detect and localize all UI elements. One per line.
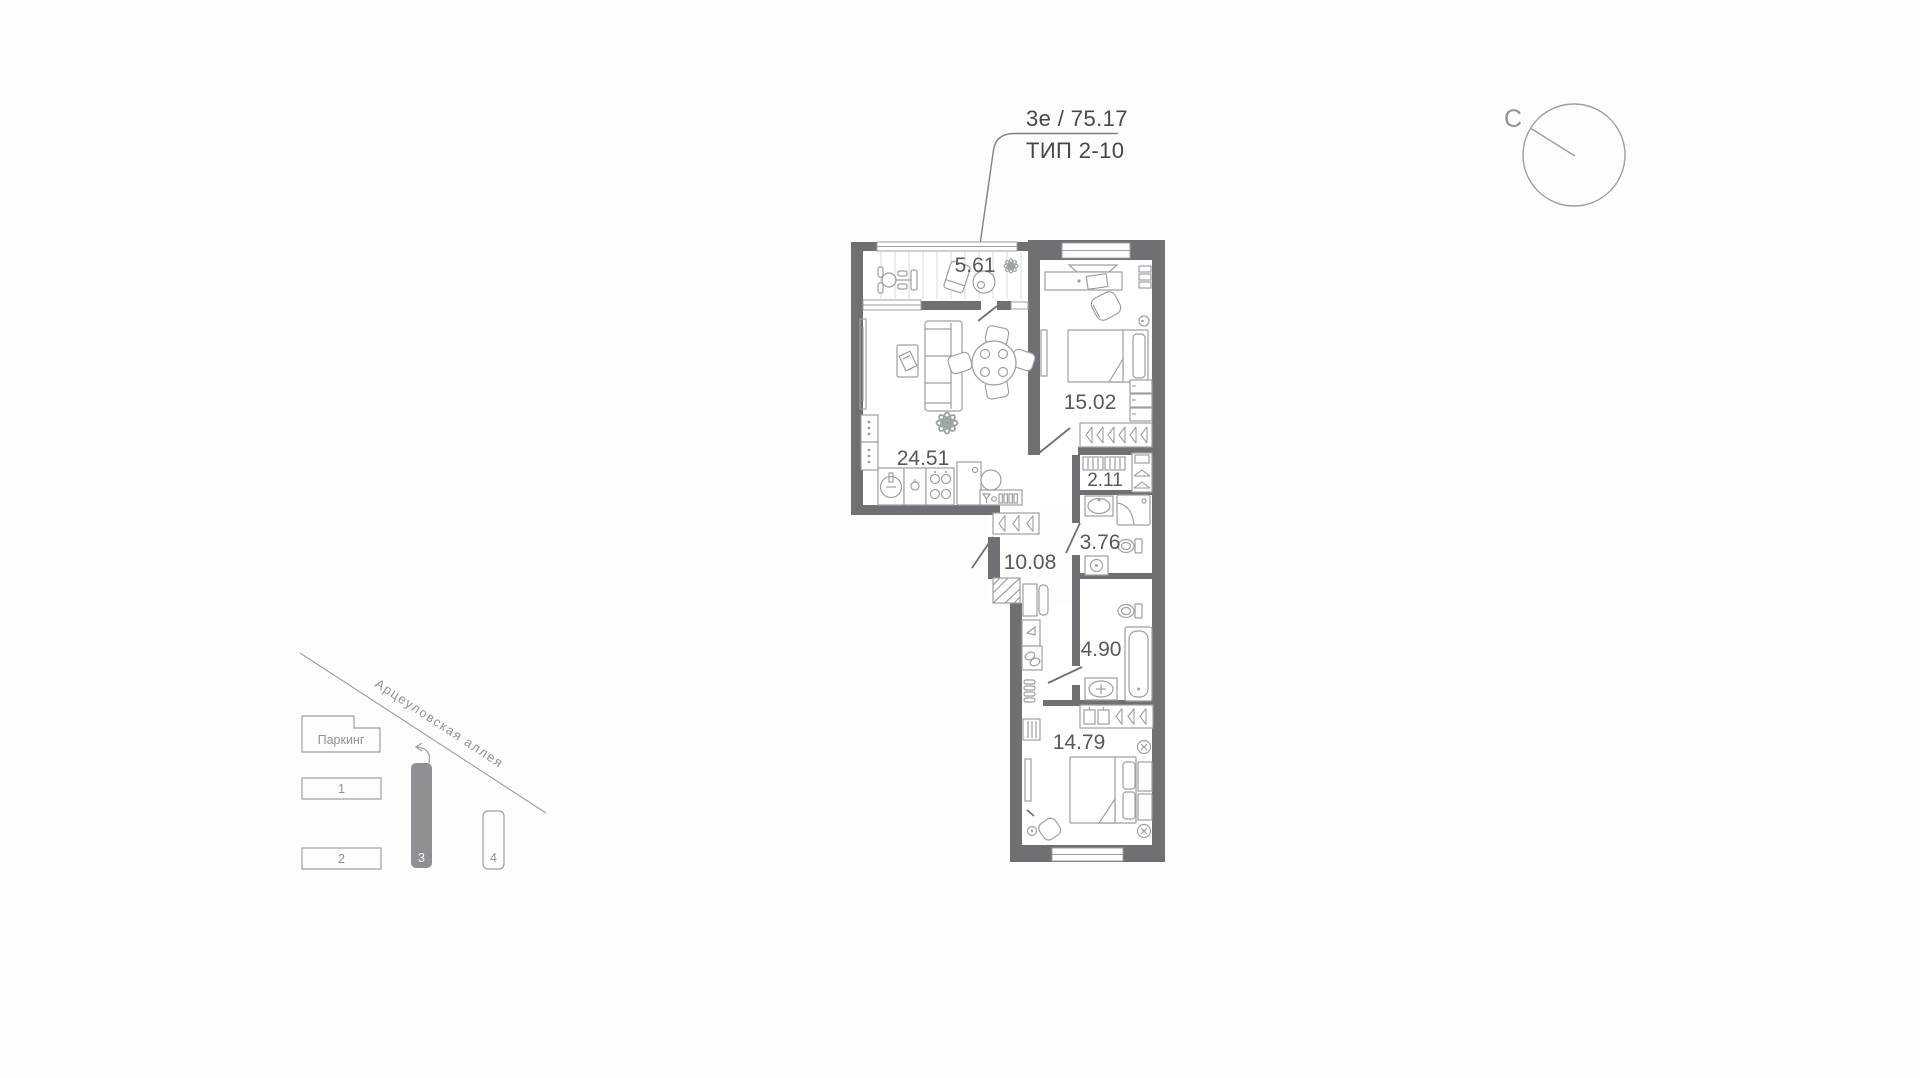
hall-wardrobe-icon [993,513,1039,534]
hall-cabinet-icon [1023,584,1048,616]
toilet-icon [1118,604,1142,618]
floor-plan: 5.61 [851,239,1176,869]
living-kitchen-area-label: 24.51 [897,447,950,470]
shower-icon [1117,495,1150,525]
wall-shelf-icon [1023,719,1040,740]
compass-north-label: С [1504,105,1522,133]
toilet-icon [1118,539,1142,553]
bedroom-2-area-label: 14.79 [1053,731,1106,754]
coat-hook-icon [1022,620,1040,646]
bedroom-1-area-label: 15.02 [1064,391,1117,414]
sink-icon [1085,496,1113,516]
parking-label: Паркинг [318,733,365,747]
bathroom-2-area-label: 4.90 [1081,638,1122,661]
minimap-building-2[interactable]: 2 [302,848,381,869]
stove-icon [926,468,954,505]
building-2-label: 2 [338,852,345,866]
kitchen-cabinets-icon [861,415,878,470]
sink-icon [1085,678,1117,700]
minimap-building-4[interactable]: 4 [483,811,504,869]
wardrobe-hangers-icon [1080,705,1153,728]
compass: С [1504,104,1625,206]
socket-icon [1139,316,1149,326]
kitchen-unit-icon [904,468,926,505]
building-3-label: 3 [418,851,425,865]
washing-machine-icon [1085,556,1108,575]
minimap-building-1[interactable]: 1 [302,778,381,799]
parking-building: Паркинг [302,716,380,752]
wardrobe-room: 2.11 [1083,453,1152,492]
bar-shelf-icon [980,490,1022,505]
building-4-label: 4 [490,851,497,865]
dresser-icon [1130,380,1152,421]
building-1-label: 1 [338,782,345,796]
bathtub-icon [1125,627,1152,701]
compass-needle-icon [1531,129,1575,157]
street-label: Арцеуловская аллея [372,676,506,771]
wall-shelf-icon [1139,266,1151,288]
single-bed-icon [1068,330,1148,382]
wardrobe-area-label: 2.11 [1087,470,1123,491]
page: 3е / 75.17 ТИП 2-10 С Арцеуловская аллея… [0,0,1920,1078]
hallway-area-label: 10.08 [1004,551,1057,574]
closet-column-icon [1132,453,1152,492]
minimap-building-3-active[interactable]: 3 [411,763,432,868]
bathroom-1-area-label: 3.76 [1080,531,1121,554]
wardrobe-hangers-icon [1080,423,1152,447]
balcony-area-label: 5.61 [955,254,996,277]
double-bed-icon [1070,757,1136,823]
shoe-bench-icon [1022,646,1042,670]
minimap: Арцеуловская аллея Паркинг 1 2 3 4 [300,653,546,869]
nightstand-icon [1138,762,1152,820]
coffee-table-icon [897,345,918,377]
kitchen-sink-icon [878,468,904,505]
building-3-arrow-icon [416,743,429,763]
hatched-cabinet-icon [993,578,1020,603]
